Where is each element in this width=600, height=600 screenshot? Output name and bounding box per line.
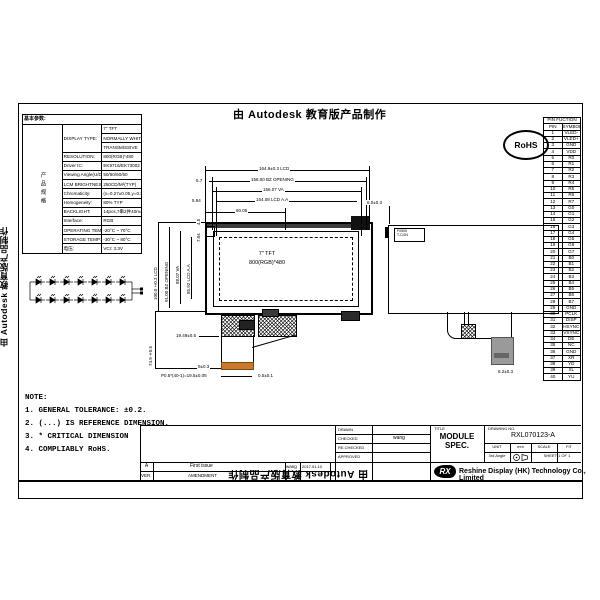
dim-label: 5.7 bbox=[195, 178, 203, 183]
fpc-component-box bbox=[341, 311, 360, 321]
spec-row-label: OPERATING TEMP: bbox=[62, 226, 102, 235]
dim-line bbox=[180, 231, 181, 304]
projection-angle-label: 3rd Angle bbox=[485, 454, 509, 459]
screen-resolution-label: 800(RGB)*480 bbox=[235, 260, 299, 266]
drawing-sheet: 由 Autodesk 教育版产品制作 由 Autodesk 教育版产品制作 由 … bbox=[0, 0, 600, 600]
pin-symbol: VSYNC bbox=[562, 330, 581, 336]
revision-name: wang bbox=[286, 464, 297, 469]
dim-line bbox=[158, 222, 159, 312]
unit-value: mm bbox=[511, 445, 530, 450]
pin-table-title: PIN FUCTION bbox=[544, 118, 581, 124]
spec-row-label: Chromaticity: bbox=[62, 189, 102, 198]
pin-symbol: YU bbox=[562, 374, 581, 380]
revision-ver: A bbox=[141, 463, 152, 469]
spec-table-header: 基本参数: bbox=[23, 115, 142, 125]
approval-label: DRAWN bbox=[337, 428, 354, 433]
spec-row-value: EK9716/EK73002 bbox=[102, 161, 142, 170]
revision-desc-label: AMENDMENT bbox=[188, 473, 217, 478]
dim-label: 6.0±0.3 bbox=[366, 200, 383, 205]
sheet-label: SHEET 1 OF 1 bbox=[533, 454, 581, 459]
spec-row-value: RGB bbox=[102, 216, 142, 225]
rohs-logo: RoHS bbox=[503, 130, 549, 160]
titleblock-line bbox=[153, 462, 154, 480]
company-name: Reshine Display (HK) Technology Co., Lim… bbox=[459, 468, 600, 482]
dim-label: 80.05 bbox=[235, 208, 248, 213]
rohs-label: RoHS bbox=[514, 140, 537, 150]
ext-line bbox=[199, 336, 219, 337]
spec-row-label: STORAGE TEMP: bbox=[62, 235, 102, 244]
spec-row-value: 7" TFT bbox=[102, 125, 142, 134]
spec-row-value: 50/60/60/60 bbox=[102, 170, 142, 179]
dim-label: 154.08 LCD A.A bbox=[255, 197, 289, 202]
dim-label: 91.00 BZ OPENING bbox=[164, 236, 169, 302]
approval-signature: wang bbox=[392, 436, 406, 441]
touch-connector bbox=[461, 324, 476, 339]
dim-label: 158.00 BZ OPENING bbox=[250, 177, 295, 182]
watermark-left: 由 Autodesk 教育版产品制作 bbox=[2, 237, 7, 347]
active-area-rect bbox=[219, 237, 353, 301]
spec-row-value: 14pcs,7串2并40mA(White/LED) bbox=[102, 207, 142, 216]
fpc-connector-contact bbox=[494, 353, 509, 358]
spec-row-label: Interface: bbox=[62, 216, 102, 225]
titleblock-line bbox=[300, 462, 301, 480]
fpc-gold-fingers bbox=[221, 362, 254, 370]
titleblock-line bbox=[335, 434, 430, 435]
spec-row-value: -30°C ~ 80°C bbox=[102, 235, 142, 244]
watermark-top: 由 Autodesk 教育版产品制作 bbox=[233, 106, 386, 122]
dim-label: 4.5 bbox=[196, 214, 201, 225]
pin-row: 40YU bbox=[544, 374, 581, 380]
company-logo: RX bbox=[434, 465, 456, 478]
dim-label: 0.5±0.1 bbox=[257, 373, 274, 378]
spec-row-label: BACKLIGHT: bbox=[62, 207, 102, 216]
ext-line bbox=[361, 187, 362, 236]
ext-line bbox=[389, 206, 390, 224]
spec-row-value: 80% TYP bbox=[102, 198, 142, 207]
spec-row-label: 电压: bbox=[62, 244, 102, 253]
dim-label: 74.9±0.5 bbox=[148, 322, 153, 366]
dim-label: 85.92 LCD A.A bbox=[186, 244, 191, 294]
front-view-bezel-strip bbox=[207, 224, 367, 228]
dim-label: 9±0.3 bbox=[197, 364, 210, 369]
fpc-connector-block bbox=[491, 337, 514, 365]
dim-label: 164.9±0.3 LCD bbox=[258, 166, 290, 171]
dim-line bbox=[169, 227, 170, 308]
revision-ver-label: VER. bbox=[141, 473, 152, 478]
ext-line bbox=[369, 166, 370, 222]
fit-label: FIT bbox=[558, 445, 580, 450]
ext-line bbox=[212, 177, 213, 230]
ext-line bbox=[216, 187, 217, 236]
dim-label: 7.04 bbox=[196, 229, 201, 242]
revision-date: 2017.01.10 bbox=[302, 464, 322, 469]
symbol-col-header: SYMBOL bbox=[562, 124, 581, 130]
drawing-no: RXL070123-A bbox=[488, 432, 578, 439]
dim-label: 156.07 VA bbox=[262, 187, 285, 192]
approval-label: CHECKED bbox=[337, 437, 359, 442]
fpc-hatched-area bbox=[258, 315, 297, 337]
spec-row-label: LCM BRIGHTNESS: bbox=[62, 180, 102, 189]
notes-title: NOTE: bbox=[25, 392, 169, 405]
titleblock-line bbox=[335, 452, 430, 453]
titleblock-line bbox=[140, 471, 335, 472]
revision-desc: First issue bbox=[190, 463, 213, 469]
dim-label: 88.07 VA bbox=[175, 252, 180, 284]
note-item: 3. * CRITICAL DIMENSION bbox=[25, 431, 169, 444]
spec-row-label: Viewing Angle(U/D/L/R) bbox=[62, 170, 102, 179]
titleblock-line bbox=[335, 443, 430, 444]
dim-label: 5.94 bbox=[191, 198, 202, 203]
ext-line bbox=[155, 311, 205, 312]
screen-size-label: 7" TFT bbox=[235, 251, 299, 257]
approval-label: APPROVED bbox=[337, 455, 361, 460]
unit-label: UNIT bbox=[485, 445, 509, 450]
spec-side-label: 产品规格 bbox=[23, 125, 63, 254]
ext-line bbox=[285, 208, 286, 230]
note-item: 1. GENERAL TOLERANCE: ±0.2. bbox=[25, 405, 169, 418]
dim-line bbox=[213, 191, 361, 192]
pin1-marker-box bbox=[206, 226, 215, 237]
spec-row-value: TRANSMISSIVE bbox=[102, 143, 142, 152]
ext-line bbox=[205, 166, 206, 222]
titleblock-line bbox=[140, 425, 141, 480]
dim-label: P0.5*(40-1)=19.5±0.05 bbox=[160, 373, 208, 378]
spec-row-label: DISPLAY TYPE: bbox=[62, 125, 102, 153]
back-view-fpc-fold bbox=[447, 312, 512, 339]
fpc-tail bbox=[221, 335, 254, 363]
pin-symbol: VLED- bbox=[562, 130, 581, 136]
pin-symbol: VLED+ bbox=[562, 136, 581, 142]
scale-label: SCALE bbox=[532, 445, 556, 450]
spec-row-value: -20°C ~ 70°C bbox=[102, 226, 142, 235]
spec-row-value: (x=0.27±0.05,y=0.31±0.05) bbox=[102, 189, 142, 198]
dim-line bbox=[191, 237, 192, 299]
sticker-line2: T-CON bbox=[397, 233, 424, 237]
spec-row-value: 800(RGB)*480 bbox=[102, 152, 142, 161]
approval-label: RE.CHECKED bbox=[337, 446, 365, 451]
ext-line bbox=[155, 368, 221, 369]
third-angle-projection-icon bbox=[512, 453, 529, 462]
module-title: MODULE SPEC. bbox=[431, 432, 483, 450]
backlight-circuit-diagram bbox=[28, 270, 146, 316]
dim-line bbox=[221, 376, 252, 377]
dim-label: 6.2±0.3 bbox=[497, 369, 514, 374]
back-view-cushion-mark bbox=[385, 227, 388, 238]
fpc-component-box bbox=[262, 309, 279, 317]
title-label: TITLE bbox=[433, 427, 446, 432]
spec-row-label: Driver IC: bbox=[62, 161, 102, 170]
spec-row-value: NORMALLY WHITE bbox=[102, 134, 142, 143]
drawing-no-label: DRAWING NO. bbox=[487, 427, 516, 432]
note-item: 4. COMPLIABLY RoHS. bbox=[25, 444, 169, 457]
back-view-sticker: F0505 T-CON bbox=[394, 228, 425, 242]
spec-row-label: RESOLUTION: bbox=[62, 152, 102, 161]
dim-label: 19.49±0.5 bbox=[175, 333, 197, 338]
spec-row-value: VCI: 3.3V bbox=[102, 244, 142, 253]
titleblock-line bbox=[330, 462, 331, 480]
spec-row-value: 250CD/M²(TYP) bbox=[102, 180, 142, 189]
spec-row-label: Homogeneity: bbox=[62, 198, 102, 207]
dim-label: 100.0±0.3 LCD bbox=[153, 238, 158, 300]
pin-number: 40 bbox=[544, 374, 563, 380]
dim-line bbox=[155, 311, 156, 368]
spec-table: 基本参数:产品规格DISPLAY TYPE:7" TFTNORMALLY WHI… bbox=[22, 114, 142, 254]
fpc-component-box bbox=[239, 320, 255, 330]
pin-symbol: HSYNC bbox=[562, 324, 581, 330]
